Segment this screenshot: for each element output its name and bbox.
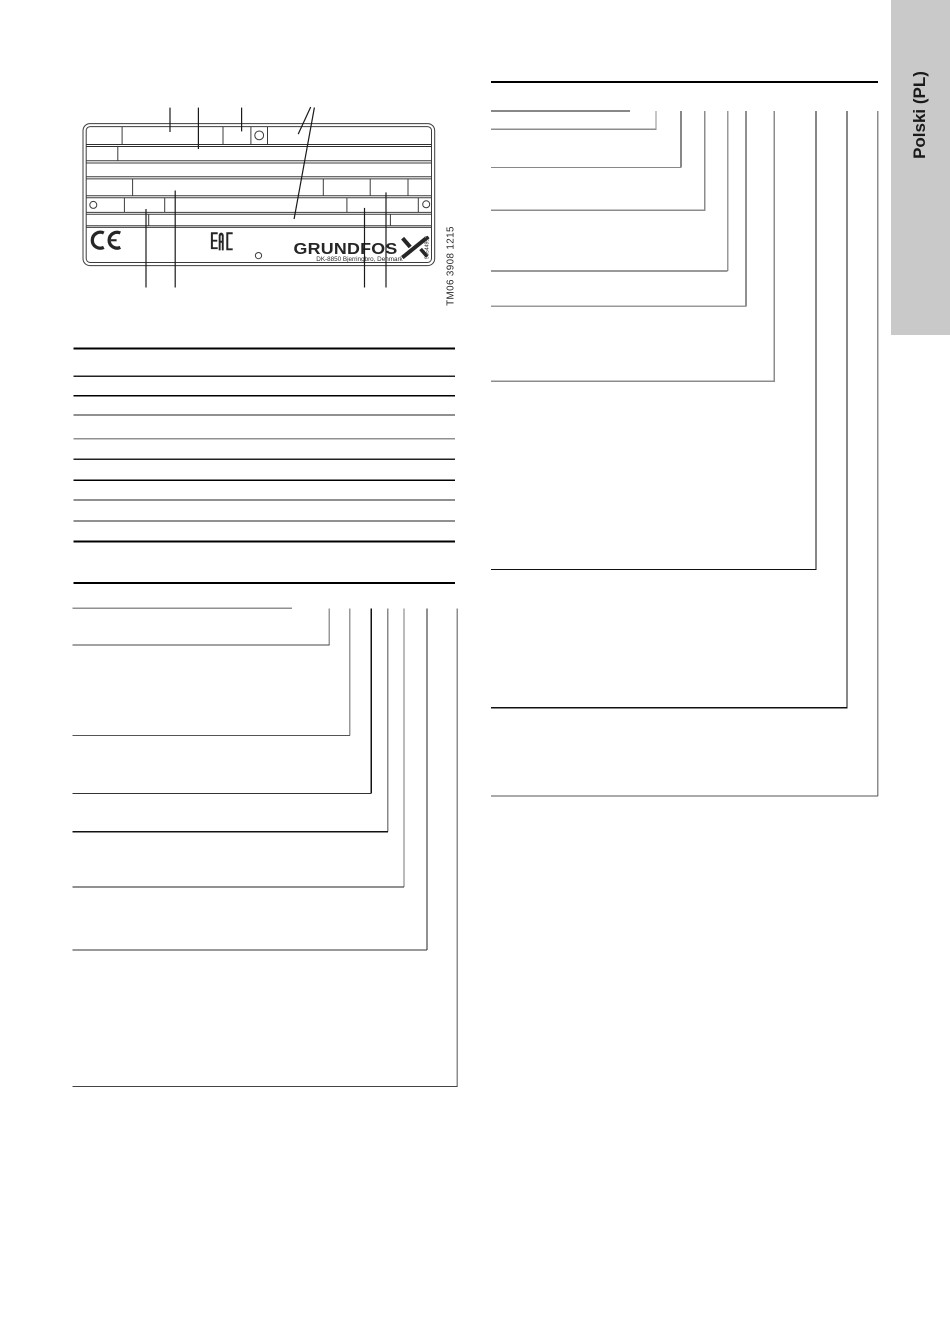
svg-text:Polski (PL): Polski (PL) <box>910 71 929 159</box>
svg-text:DK-8850 Bjerringbro, Denmark: DK-8850 Bjerringbro, Denmark <box>316 256 403 263</box>
svg-text:TM06 3908 1215: TM06 3908 1215 <box>446 226 457 306</box>
svg-text:98544950: 98544950 <box>424 236 430 259</box>
